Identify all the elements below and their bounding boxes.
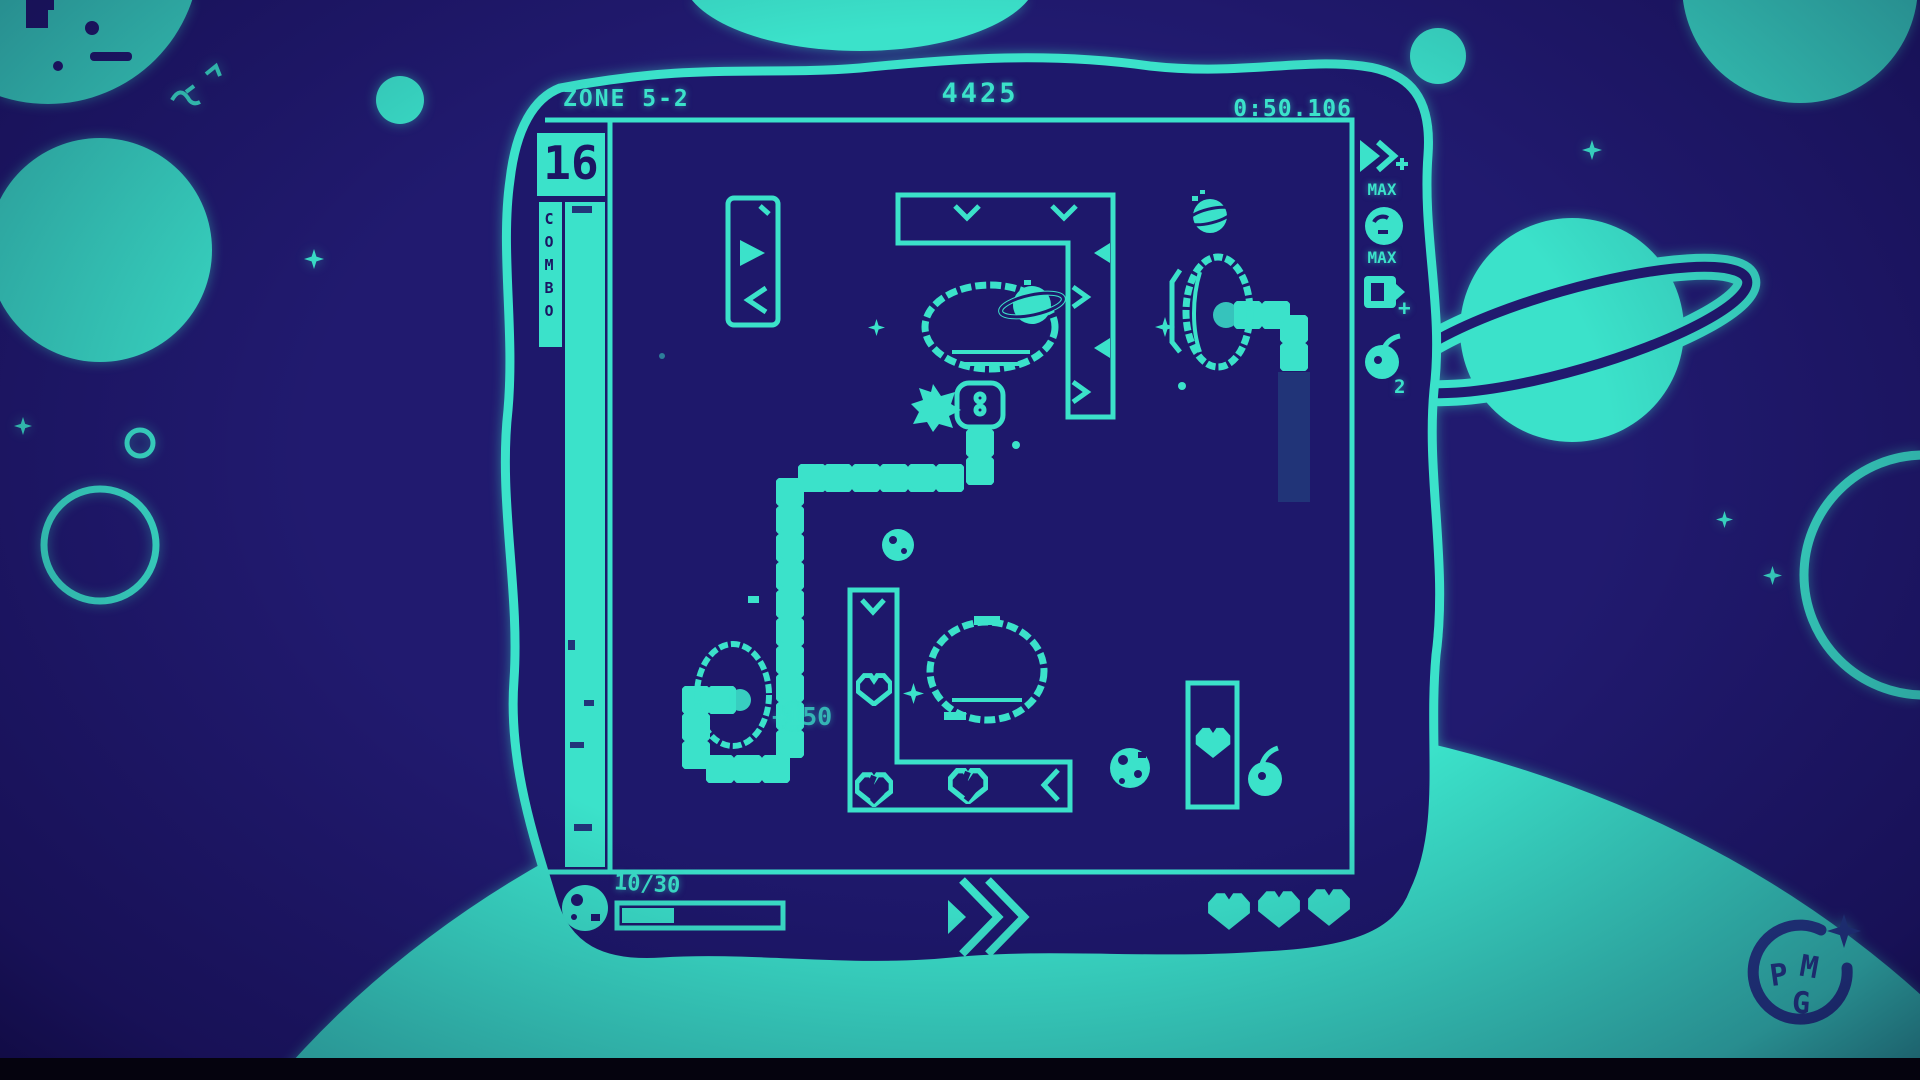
tiny-glyph-b	[206, 66, 220, 76]
moon-top-left	[0, 0, 200, 104]
score-value: 4425	[900, 78, 1060, 109]
fruit-orb	[882, 529, 914, 561]
sparkle-icon	[1763, 566, 1782, 585]
orb-meter	[1365, 207, 1403, 245]
cherry-icon	[1365, 345, 1399, 379]
combo-value: 16	[537, 133, 605, 196]
tiny-glyph-a	[172, 86, 200, 103]
top-blob	[682, 0, 1038, 51]
dot-circle	[376, 76, 424, 124]
ring-small-left	[127, 430, 153, 456]
big-circle-left	[0, 138, 212, 362]
fruit-orb	[1110, 748, 1150, 788]
snake-tail-in-portal	[729, 689, 751, 711]
circle-frame-topright	[1410, 28, 1466, 84]
sparkle-icon	[1716, 511, 1733, 528]
letterbox-bar	[0, 1058, 1920, 1080]
fruit-progress-label: 10/30	[613, 870, 680, 898]
boost-max-label: MAX	[1352, 180, 1412, 199]
sparkle-icon	[1582, 140, 1602, 160]
sparkle-icon	[14, 417, 32, 435]
orb-icon	[1365, 207, 1403, 245]
cup-plus-label: +	[1398, 296, 1411, 320]
motion-trail	[1278, 372, 1310, 502]
timer-value: 0:50.106	[1152, 96, 1352, 122]
ring-bottom-right	[1804, 455, 1920, 695]
score-popup: +150	[772, 702, 832, 731]
logo-letter-g: G	[1791, 985, 1811, 1021]
orb-max-label: MAX	[1352, 248, 1412, 267]
fruit-progress-fill	[622, 908, 674, 923]
cherry-count: 2	[1394, 376, 1405, 398]
game-screen: ZONE 5-2 4425 0:50.106 16 COMBO +150 MAX…	[0, 0, 1920, 1080]
circle-topright-big	[1682, 0, 1918, 103]
scene-graphics	[0, 0, 1920, 1080]
zone-label: ZONE 5-2	[563, 86, 690, 112]
combo-label: COMBO	[540, 210, 558, 325]
sparkle-icon	[304, 249, 324, 269]
fruit-counter-icon	[562, 885, 608, 931]
combo-bar	[565, 202, 605, 867]
ring-big-left	[44, 489, 156, 601]
